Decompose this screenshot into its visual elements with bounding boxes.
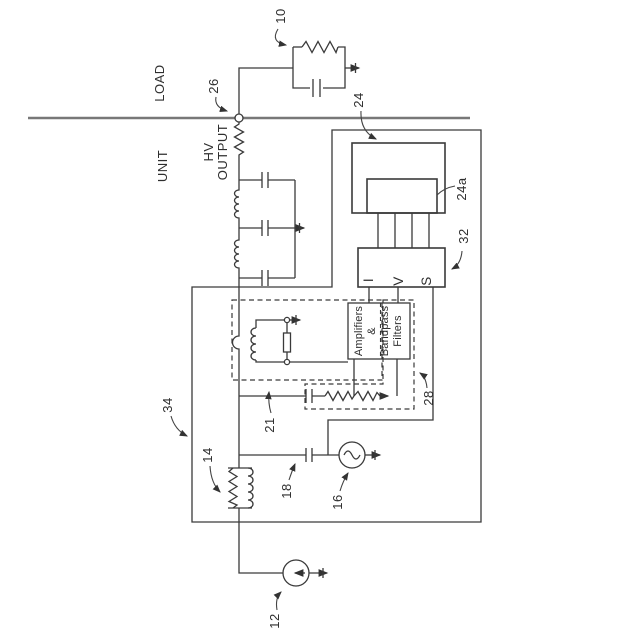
node-26	[235, 114, 243, 122]
load-label: LOAD	[153, 64, 167, 101]
circuit-diagram-canvas	[0, 0, 640, 640]
hv-output-label: HV OUTPUT	[202, 124, 230, 180]
hv-output-resistor	[235, 122, 244, 180]
load-rc-network-10	[293, 42, 359, 98]
sine-symbol	[344, 451, 360, 459]
leader-14	[210, 466, 220, 492]
ref-16: 16	[331, 494, 345, 509]
terminal-s-label: S	[420, 276, 434, 286]
feedback-rc-chain-28	[239, 359, 397, 403]
load-resistor	[302, 42, 338, 53]
amp-line1: Amplifiers	[353, 306, 366, 357]
controller-inner-box-24a	[367, 179, 437, 213]
terminal-node-top	[284, 317, 289, 322]
amp-line4: Filters	[392, 306, 405, 357]
feedback-capacitor	[239, 389, 325, 403]
terminal-node-bottom	[284, 359, 289, 364]
leader-24a	[437, 186, 455, 195]
wire-node26-to-load	[239, 68, 293, 114]
leader-21	[269, 392, 271, 413]
feedback-resistor-1	[325, 392, 354, 401]
ref-26: 26	[207, 78, 221, 93]
component14-coil	[248, 468, 253, 508]
filter-inductor-bottom	[235, 228, 240, 287]
leader-lines	[171, 29, 462, 610]
component14-resistor	[229, 468, 237, 508]
leader-18	[289, 464, 295, 480]
leader-24	[361, 111, 376, 139]
leader-16	[340, 473, 348, 491]
ref-24a: 24a	[455, 177, 469, 200]
filter-capacitor-top	[239, 172, 295, 188]
leader-32	[452, 251, 462, 269]
amp-line2: &	[366, 306, 379, 357]
rl-component-14	[228, 468, 253, 508]
ref-14: 14	[201, 447, 215, 462]
ref-32: 32	[457, 228, 471, 243]
terminal-v-label: V	[392, 276, 406, 286]
filter-divider-network	[235, 172, 305, 287]
ref-34: 34	[161, 397, 175, 412]
current-sense-transformer-21	[251, 315, 348, 365]
leader-34	[171, 416, 187, 436]
secondary-coil	[251, 328, 256, 360]
controller-box-24	[352, 143, 445, 213]
amp-line3: Bandpass	[379, 306, 392, 357]
amplifiers-filters-label: Amplifiers & Bandpass Filters	[353, 306, 405, 357]
feedback-resistor-2	[354, 392, 380, 401]
bus-24a-to-32	[378, 213, 429, 248]
filter-capacitor-middle	[239, 220, 295, 236]
filter-capacitor-bottom	[239, 270, 295, 286]
burden-resistor	[284, 333, 291, 352]
terminal-i-label: I	[362, 278, 376, 282]
ref-28: 28	[422, 390, 436, 405]
leader-28	[420, 373, 427, 388]
filter-inductor-top	[235, 180, 240, 228]
ref-21: 21	[263, 417, 277, 432]
patent-figure: LOAD UNIT HV OUTPUT 10 26 24 24a 32 34 1…	[0, 0, 640, 640]
hv-output-line1: HV	[202, 124, 216, 180]
leader-12	[277, 592, 282, 610]
main-line-primary	[233, 287, 239, 468]
current-source-12	[283, 560, 327, 586]
unit-label: UNIT	[156, 150, 170, 182]
leader-10	[275, 29, 286, 45]
ref-12: 12	[268, 613, 282, 628]
load-capacitor	[313, 79, 320, 97]
ref-18: 18	[280, 483, 294, 498]
ref-24: 24	[352, 92, 366, 107]
ac-source-branch	[239, 442, 380, 468]
wire-to-current-source	[239, 508, 283, 573]
ref-10: 10	[274, 8, 288, 23]
coupling-capacitor-18	[239, 448, 339, 462]
hv-output-line2: OUTPUT	[216, 124, 230, 180]
leader-26	[216, 97, 227, 111]
